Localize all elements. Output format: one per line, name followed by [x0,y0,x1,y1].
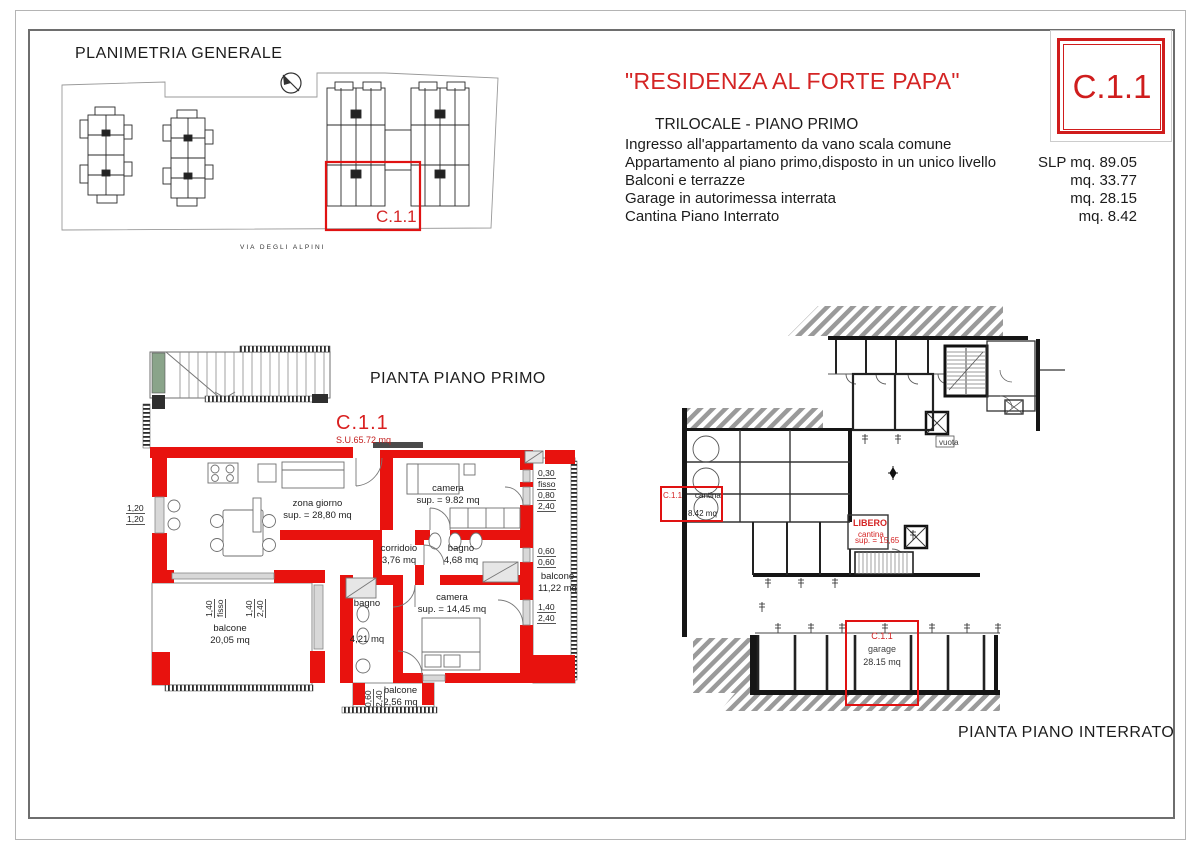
dim-balcone3: 0,602,40 [363,689,385,708]
libero-sub2: sup. = 15,65 [855,536,899,545]
description-row: Garage in autorimessa interrata mq. 28.1… [625,190,1137,208]
building-cluster-right [327,82,469,206]
dim-right-030: 0,30fisso [537,468,556,490]
first-floor-unit-label: C.1.1 [336,412,389,435]
first-floor-surface-label: S.U.65.72 mq [336,435,391,445]
dim-window-140: 1,402,40 [244,599,266,618]
vuota-label: vuota [939,438,959,447]
dim-left-window: 1,201,20 [126,503,145,525]
top-cells-doors [828,346,953,384]
basement-title: PIANTA PIANO INTERRATO [958,724,1174,742]
central-cells [853,374,933,430]
room-label-balcone1: balcone 20,05 mq [190,623,270,646]
room-label-zona-giorno: zona giorno sup. = 28,80 mq [270,498,365,521]
first-floor-drawing [120,340,610,720]
libero-label: LIBERO [853,519,887,528]
unit-badge-label: C.1.1 [1063,44,1161,130]
building-cluster-left [80,107,132,203]
room-label-bagno2: bagno [342,598,392,610]
basement-plan: C.1.1 cantina 8.42 mq LIBERO cantina sup… [650,290,1165,755]
first-floor-title: PIANTA PIANO PRIMO [370,370,546,388]
garage-unit-label: C.1.1 [862,632,902,641]
dim-right-080: 0,802,40 [537,490,556,512]
middle-cells [753,522,850,575]
building-cluster-middle [163,110,213,206]
basement-stairs [945,346,987,396]
unit-badge-frame: C.1.1 [1050,30,1172,142]
dim-right-060: 0,600,60 [537,546,556,568]
basement-drawing [650,290,1165,755]
site-plan: C.1.1 [55,70,525,255]
apartment-subtitle: TRILOCALE - PIANO PRIMO [655,116,858,134]
right-wing [987,341,1065,414]
description-rows: Ingresso all'appartamento da vano scala … [625,136,1137,226]
site-plan-drawing [55,70,525,255]
unit-badge: C.1.1 [1057,38,1165,134]
project-title: "RESIDENZA AL FORTE PAPA" [625,68,960,95]
room-label-camera2: camera sup. = 14,45 mq [412,592,492,615]
cantina-unit-label: C.1.1 [663,491,682,500]
site-unit-label: C.1.1 [376,207,417,227]
survey-marker-icon [888,466,898,480]
first-floor-plan: PIANTA PIANO PRIMO C.1.1 S.U.65.72 mq zo… [120,340,610,720]
garage-name-label: garage [857,645,907,654]
description-row: Appartamento al piano primo,disposto in … [625,154,1137,172]
basement-stairs-2 [855,552,913,574]
description-row: Balconi e terrazze mq. 33.77 [625,172,1137,190]
room-label-bagno2-area: 4,21 mq [342,634,392,646]
street-label: VIA DEGLI ALPINI [240,244,325,251]
dim-window-fisso: 1,40fisso [204,599,226,618]
room-label-bagno1: bagno 4,68 mq [436,543,486,566]
cantina-area-label: 8.42 mq [688,509,717,518]
north-arrow-icon [281,73,301,93]
description-row: Cantina Piano Interrato mq. 8.42 [625,208,1137,226]
site-plan-title: PLANIMETRIA GENERALE [75,45,282,63]
stairs [143,346,330,448]
room-label-camera1: camera sup. = 9.82 mq [408,483,488,506]
dim-right-140: 1,402,40 [537,602,556,624]
room-label-corridoio: corridoio 3,76 mq [374,543,424,566]
drawing-sheet: PLANIMETRIA GENERALE [0,0,1200,848]
room-label-balcone2: balcone 11,22 mq [535,571,580,594]
cantina-name-label: cantina [695,491,721,500]
garage-area-label: 28.15 mq [852,658,912,667]
top-cells [836,340,928,374]
